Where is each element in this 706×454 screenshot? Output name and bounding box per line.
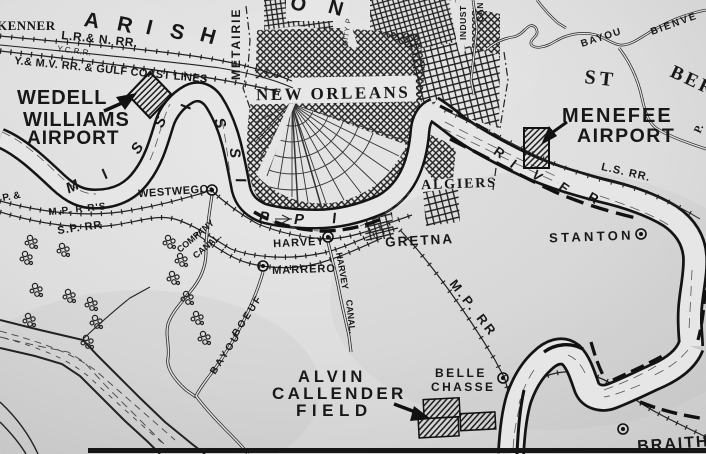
svg-text:INDUST: INDUST [458,5,468,40]
svg-text:ST: ST [583,66,618,91]
svg-text:WEDELL: WEDELL [17,87,107,109]
svg-text:S: S [226,147,244,159]
svg-text:CAN: CAN [475,2,485,22]
svg-text:BELLE: BELLE [435,366,487,380]
svg-text:METAIRIE: METAIRIE [229,8,243,80]
svg-text:MENEFEE: MENEFEE [562,105,673,127]
svg-text:KENNER: KENNER [0,18,56,33]
svg-text:MARRERO: MARRERO [272,263,336,277]
svg-text:CHASSE: CHASSE [431,380,495,394]
svg-text:AIRPORT: AIRPORT [577,125,675,147]
svg-text:NEW ORLEANS: NEW ORLEANS [256,83,411,105]
svg-text:ALGIERS: ALGIERS [421,176,497,194]
svg-text:STANTON: STANTON [549,227,634,245]
svg-text:P: P [294,211,305,228]
svg-text:FIELD: FIELD [296,401,373,420]
svg-text:AIRPORT: AIRPORT [27,128,120,149]
